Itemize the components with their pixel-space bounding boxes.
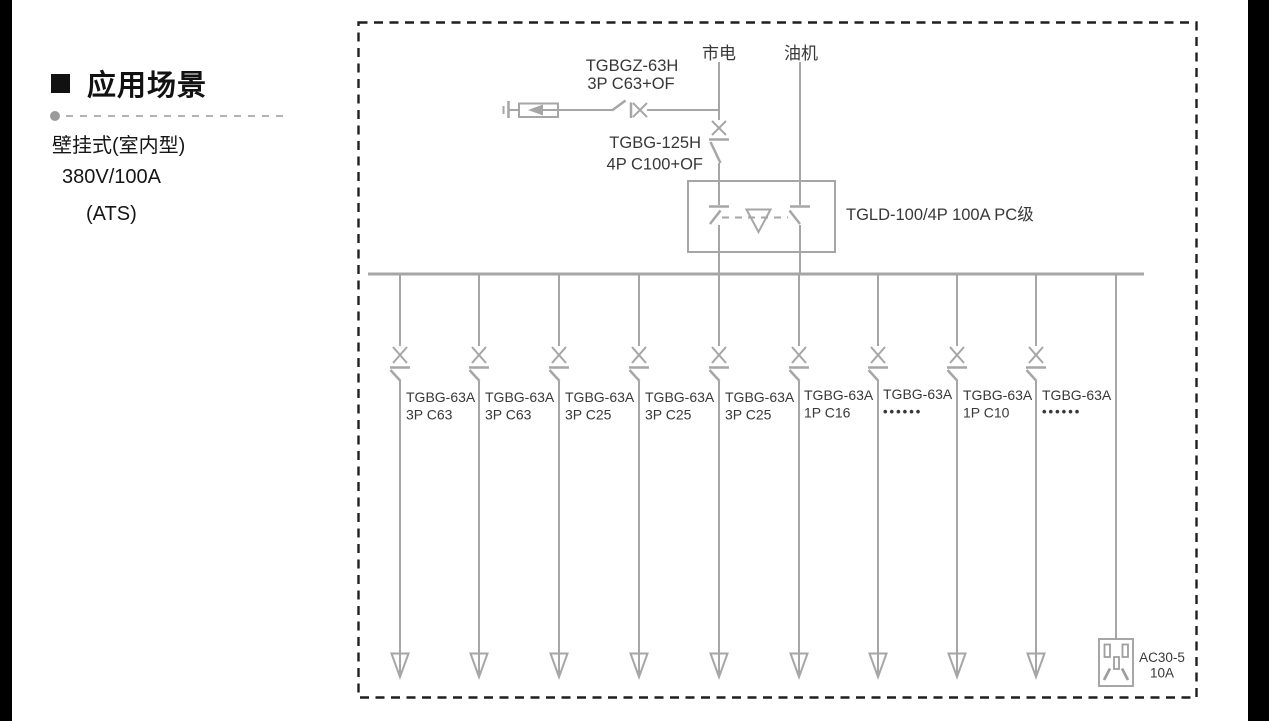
ats-switch (688, 181, 835, 274)
mains-incomer-breaker (709, 62, 729, 181)
feeder-9-model: TGBG-63A (1042, 387, 1112, 403)
socket-branch (1099, 275, 1133, 686)
feeder-7-spec: •••••• (883, 404, 922, 419)
feeder-5-symbol (709, 276, 729, 678)
interlock-triangle-icon (747, 210, 771, 233)
feeder-6-spec: 1P C16 (804, 405, 851, 421)
feeder-3-spec: 3P C25 (565, 407, 612, 423)
feeder-9-spec: •••••• (1042, 404, 1081, 419)
feeder-4-spec: 3P C25 (645, 407, 692, 423)
spd-breaker-model: TGBGZ-63H (586, 57, 679, 75)
feeder-1-spec: 3P C63 (406, 407, 453, 423)
feeder-6-model: TGBG-63A (804, 387, 874, 403)
feeder-1-symbol (390, 276, 410, 678)
feeder-2-symbol (469, 276, 489, 678)
feeder-8-model: TGBG-63A (963, 387, 1033, 403)
main-breaker-spec: 4P C100+OF (607, 156, 703, 174)
socket-rating: 10A (1150, 666, 1174, 681)
main-breaker-model: TGBG-125H (609, 134, 701, 152)
generator-label: 油机 (784, 44, 818, 63)
socket-model: AC30-5 (1139, 650, 1185, 665)
feeder-7-symbol (868, 276, 888, 678)
spd-branch (504, 101, 720, 119)
ats-label: TGLD-100/4P 100A PC级 (846, 205, 1034, 224)
single-line-diagram: 市电 油机 TGBG-125H 4P C100+OF TG (0, 0, 1269, 721)
feeder-8-symbol (947, 276, 967, 678)
feeder-8-spec: 1P C10 (963, 405, 1010, 421)
feeder-2-spec: 3P C63 (485, 407, 532, 423)
feeder-6-symbol (789, 276, 809, 678)
feeder-3-symbol (549, 276, 569, 678)
feeder-7-model: TGBG-63A (883, 386, 953, 402)
feeder-1-model: TGBG-63A (406, 389, 476, 405)
screenshot-root: 应用场景 壁挂式(室内型) 380V/100A (ATS) 市电 油机 (0, 0, 1269, 721)
feeder-4-symbol (629, 276, 649, 678)
feeder-3-model: TGBG-63A (565, 389, 635, 405)
feeder-9-symbol (1026, 276, 1046, 678)
feeder-2-model: TGBG-63A (485, 389, 555, 405)
feeder-4-model: TGBG-63A (645, 389, 715, 405)
feeder-5-model: TGBG-63A (725, 389, 795, 405)
spd-breaker-spec: 3P C63+OF (587, 75, 674, 93)
feeder-5-spec: 3P C25 (725, 407, 772, 423)
mains-label: 市电 (702, 44, 736, 63)
